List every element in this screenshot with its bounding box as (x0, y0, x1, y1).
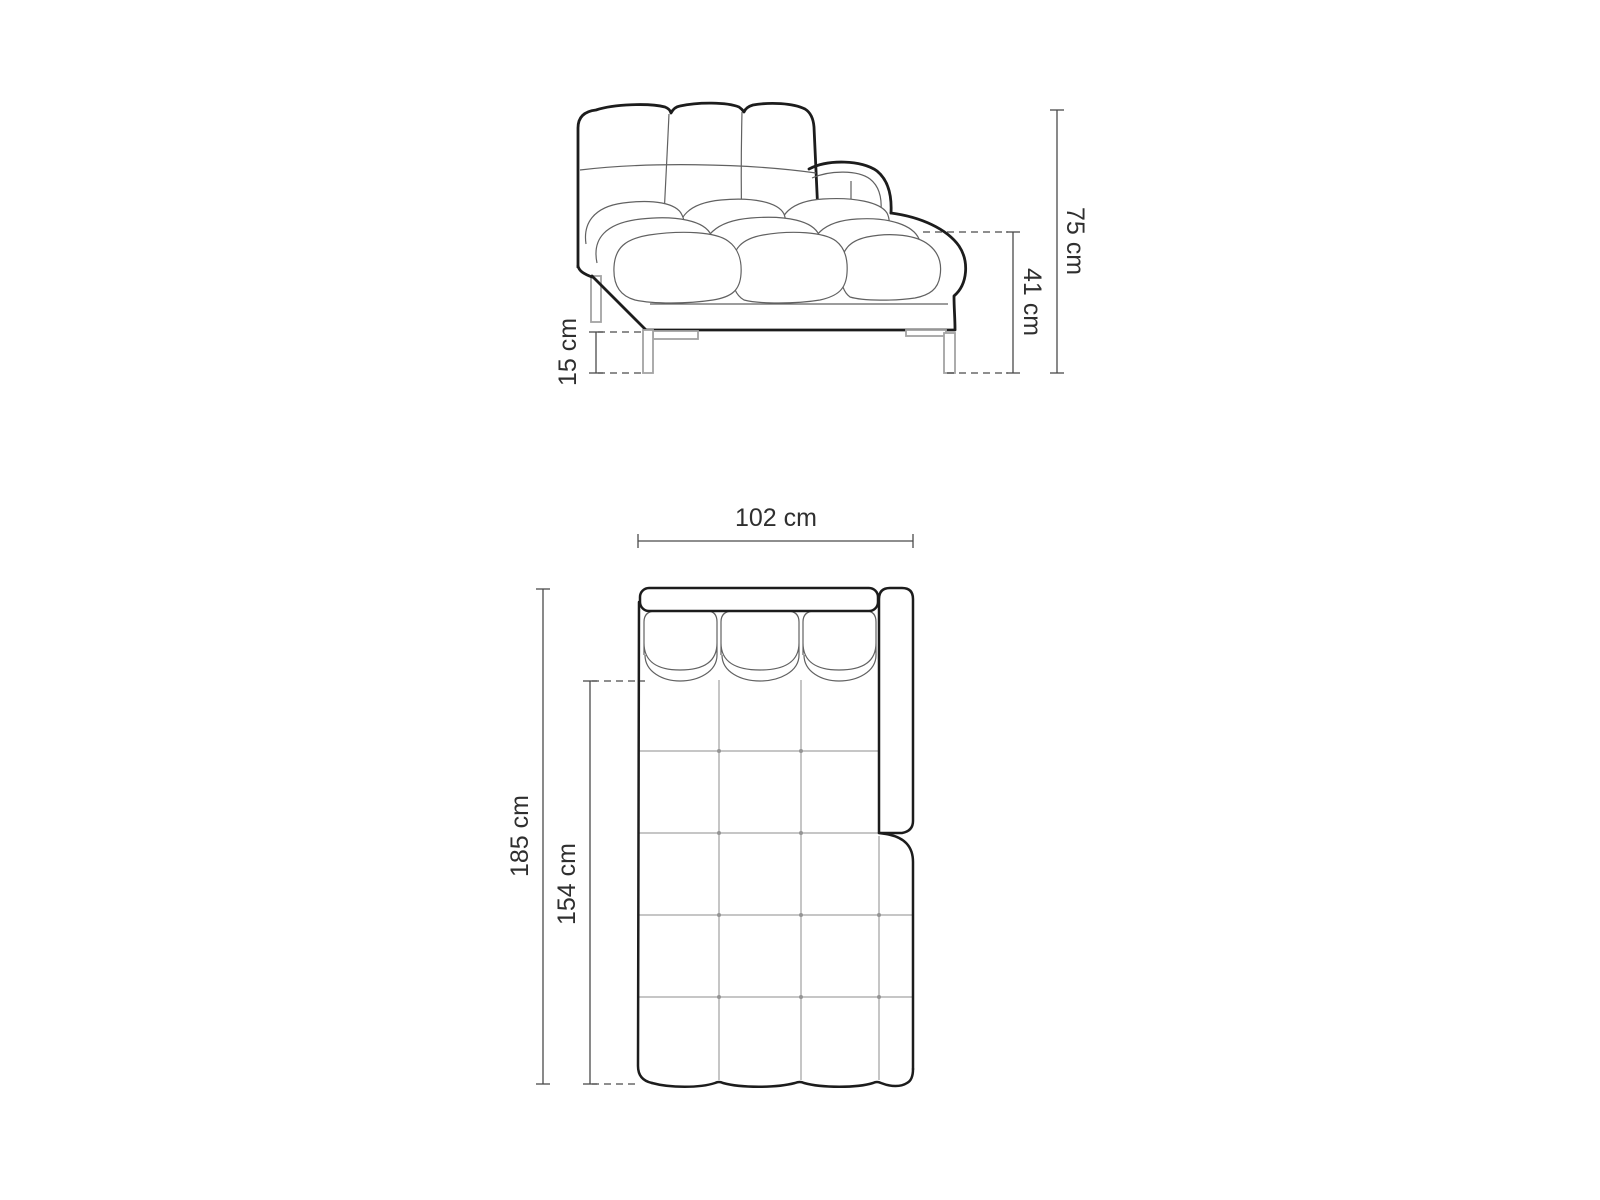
total-length-label: 185 cm (506, 795, 534, 877)
backrest-base-connector (578, 266, 592, 277)
dimension-total-height: 75 cm (1050, 110, 1089, 373)
seat-cushion (841, 235, 941, 301)
side-right-leg-rail (906, 330, 946, 336)
side-right-leg-post (944, 333, 955, 373)
side-left-leg-post (643, 330, 653, 373)
plan-armrest (879, 588, 913, 833)
seat-cushion (732, 232, 847, 303)
chaise-length-label: 154 cm (553, 843, 581, 925)
seat-height-label: 41 cm (1018, 268, 1046, 336)
seat-cushion (614, 232, 741, 303)
plan-view (638, 588, 913, 1087)
dimension-chaise-length: 154 cm (553, 681, 645, 1084)
leg-height-label: 15 cm (554, 318, 582, 386)
dimension-seat-height: 41 cm (923, 232, 1046, 373)
total-height-label: 75 cm (1061, 207, 1089, 275)
side-legs (643, 330, 955, 373)
dimension-drawing-page: 75 cm 41 cm 15 cm (0, 0, 1600, 1200)
dimension-drawing: 75 cm 41 cm 15 cm (0, 0, 1600, 1200)
dimension-width: 102 cm (638, 504, 913, 548)
side-left-leg-rail (653, 331, 698, 339)
plan-back-rail (640, 588, 878, 611)
dimension-leg-height: 15 cm (554, 318, 643, 386)
seat-front-row (614, 232, 941, 303)
width-label: 102 cm (735, 504, 817, 532)
dimension-total-length: 185 cm (506, 589, 550, 1084)
